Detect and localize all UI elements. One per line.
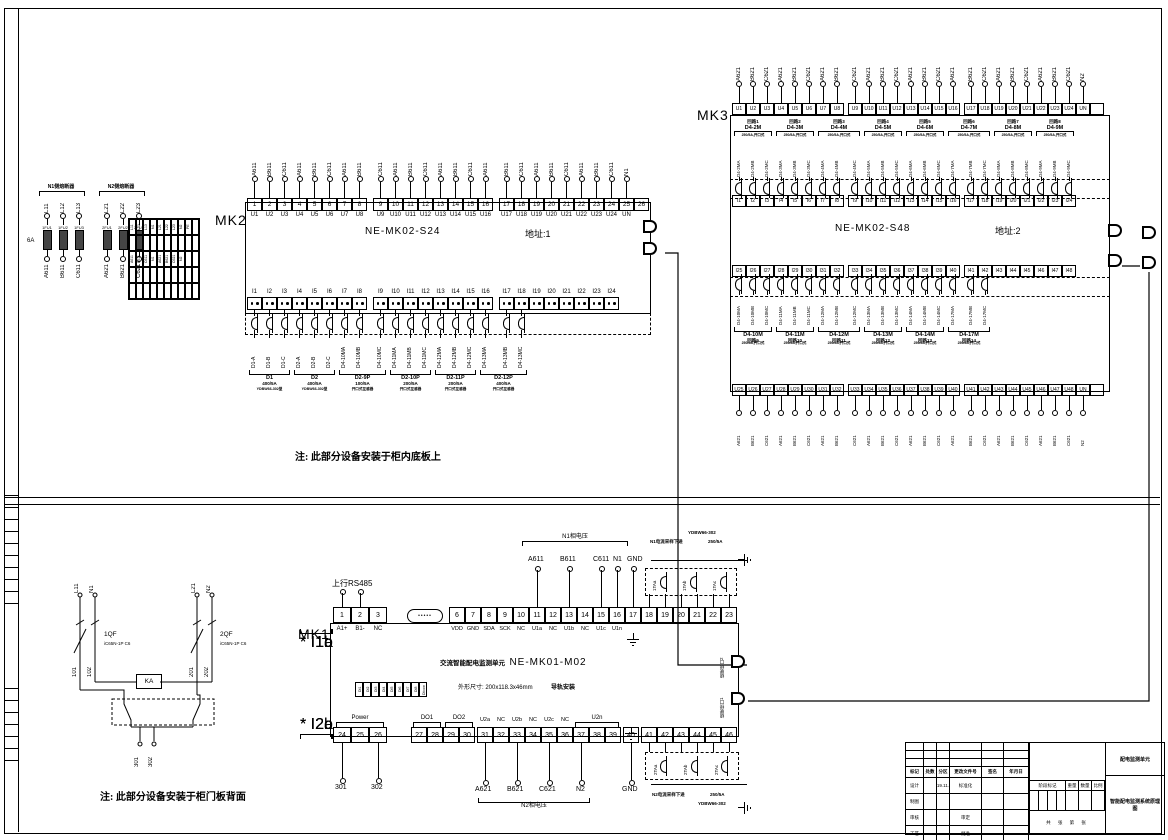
current-transformer-icon xyxy=(436,316,446,330)
terminal-number: 6 xyxy=(322,198,337,211)
terminal-column: B611 2 U2 xyxy=(262,150,277,220)
ct-wire-label: D4-3MC xyxy=(807,147,812,177)
terminal-strip-cell xyxy=(164,235,171,251)
terminal-column: C621 U6 xyxy=(802,55,816,115)
terminal-number: 41 xyxy=(641,727,657,743)
current-transformer-icon xyxy=(376,316,386,330)
signature-cell: 设计 xyxy=(906,778,924,794)
revision-cell xyxy=(950,751,982,759)
di-terminal: DI3 xyxy=(371,682,379,697)
title-header-row: 标记处数分区更改文件号签名年月日 xyxy=(906,767,1029,778)
fuse-icon xyxy=(59,230,68,250)
channel-terminal: I43 xyxy=(992,265,1006,277)
header-cell: 处数 xyxy=(924,767,937,778)
terminal-strip-cell: C621 xyxy=(171,251,178,267)
fuse-column: L11 1FU1 A611 xyxy=(39,197,55,278)
ct-wire-label: D4-10MC xyxy=(765,295,770,325)
terminal-column: B611 20 U20 xyxy=(544,150,559,220)
weight-label: 重量 xyxy=(1066,781,1079,791)
terminal-number: 40 xyxy=(623,727,639,743)
terminal-name: U15 xyxy=(932,103,946,115)
ct-wire-label: D4-10MA xyxy=(342,338,347,368)
wire-label: B621 xyxy=(835,416,840,446)
terminal-number: 19 xyxy=(657,607,673,623)
channel-name: I2 xyxy=(267,288,272,297)
terminal-pair xyxy=(262,297,277,310)
ct-group: 回路1 D4-2M 250/5A,开口式 xyxy=(734,119,772,138)
channel-terminal: I35 xyxy=(876,265,890,277)
terminal-strip-cell xyxy=(192,251,199,267)
ct-group: D2-12P 400/5A 开口式互感器 xyxy=(480,370,527,392)
fuse-column: L21 2FU1 A621 xyxy=(99,197,115,278)
revision-cell xyxy=(950,759,982,767)
mk3-unit: MK3 A621 U1 B621 U2 C621 U3 A621 xyxy=(695,55,1165,465)
terminal-strip-cell xyxy=(192,267,199,283)
current-channel-column: I11 D4-11MB xyxy=(403,288,418,368)
current-channel-column: I14 D4-12MB xyxy=(448,288,463,368)
wire-n1: N1 xyxy=(613,556,622,563)
wire-label: B621 xyxy=(969,416,974,446)
wire-label: A611 xyxy=(252,150,258,176)
terminal-pair xyxy=(478,297,493,310)
terminal-column: B611 23 U23 xyxy=(589,150,604,220)
wire-201: 201 xyxy=(189,659,195,677)
current-channel-column: I21 xyxy=(559,288,574,368)
wire-label: B621 xyxy=(793,416,798,446)
wire-label: C611 xyxy=(468,150,474,176)
terminal-number: 24 xyxy=(604,198,619,211)
channel-name: I24 xyxy=(607,288,615,297)
ct-group: 回路8 D4-9M 250/5A,开口式 xyxy=(1036,119,1074,138)
fuse-input-label: L12 xyxy=(60,197,66,213)
signature-cell xyxy=(924,778,937,794)
group-type: 开口式互感器 xyxy=(341,386,383,391)
group-type: 开口式互感器 xyxy=(437,386,474,391)
ct-wire-label: D4-4MB xyxy=(835,147,840,177)
wire-label: B611 xyxy=(408,150,414,176)
mk1-cascade-port-2 xyxy=(731,655,745,668)
mk2-bottom-terminals: I1 D1-A I2 D1-B I3 D1-C xyxy=(247,288,619,368)
terminal-number: 18 xyxy=(641,607,657,623)
terminal-column: C621 U3 xyxy=(760,55,774,115)
terminal-strip-cell xyxy=(192,235,199,251)
wire-label: C621 xyxy=(807,416,812,446)
terminal-column xyxy=(1090,384,1104,446)
breaker-1qf-label: 1QF xyxy=(104,631,117,638)
ct-wire-label: D4-7MC xyxy=(983,147,988,177)
terminal-strip-cell xyxy=(192,219,199,235)
wire-label: A611 xyxy=(342,150,348,176)
signature-cell: 制图 xyxy=(906,794,924,810)
ground-icon xyxy=(744,802,752,814)
terminal-column: U32 B621 xyxy=(830,384,844,446)
wire-label: C611 xyxy=(423,150,429,176)
terminal-column: U36 C621 xyxy=(890,384,904,446)
signature-cell xyxy=(1004,810,1029,826)
mk2-cascade-port-2 xyxy=(643,242,657,255)
ct-wire-label: D4-2MB xyxy=(751,147,756,177)
channel-name: I1 xyxy=(252,288,257,297)
group-type: YDBW66-302型 xyxy=(251,386,288,391)
terminal-name: U44 xyxy=(1006,384,1020,396)
signature-cell: 审定 xyxy=(950,810,982,826)
current-channel-column: I6 D2-C xyxy=(322,288,337,368)
current-channel-column: I16 D4-13MA xyxy=(478,288,493,368)
ct1-rating: 250/5A xyxy=(708,539,723,544)
wire-label: B621 xyxy=(792,55,798,81)
terminal-name: U15 xyxy=(465,211,476,220)
channel-name: I14 xyxy=(451,288,459,297)
terminal-strip-cell xyxy=(150,267,157,283)
revision-cell xyxy=(937,759,950,767)
terminal-strip-cell: B611 xyxy=(136,251,143,267)
channel-name: I19 xyxy=(532,288,540,297)
ct-wire-label: D4-12MC xyxy=(468,338,473,368)
wire-l21: L21 xyxy=(191,575,197,593)
stage-header: 阶段标记 重量 数量 比例 xyxy=(1030,781,1105,791)
current-channel-column: I1 D1-A xyxy=(247,288,262,368)
terminal-number: 13 xyxy=(561,607,577,623)
terminal-column: U30 C621 xyxy=(802,384,816,446)
terminal-number: 19 xyxy=(529,198,544,211)
terminal-column: U41 B621 xyxy=(964,384,978,446)
terminal-column: U48 C621 xyxy=(1062,384,1076,446)
ct-label: 2TAb xyxy=(684,757,689,775)
terminal-name: UN xyxy=(1076,103,1090,115)
current-transformer-icon xyxy=(720,759,730,773)
mk3-lower-groups: D4-10M 回路9 250/5A,开口式 D4-11M 回路10 250/5A… xyxy=(732,327,1112,357)
terminal-column: A611 10 U10 xyxy=(388,150,403,220)
title-block: 标记处数分区更改文件号签名年月日 设计2019.11.04标准化制图审核审定工艺… xyxy=(905,742,1165,835)
wire-302: 302 xyxy=(371,784,383,791)
terminal-column: C611 15 U15 xyxy=(463,150,478,220)
terminal-column: A611 22 U22 xyxy=(574,150,589,220)
terminal-number: 9 xyxy=(497,607,513,623)
terminal-name: U10 xyxy=(862,103,876,115)
mk1-dims-text: 外形尺寸: 200x118.3x46mm xyxy=(458,685,533,691)
wire-label: A611 xyxy=(438,150,444,176)
group-type: 开口式互感器 xyxy=(482,386,524,391)
terminal-pair xyxy=(307,297,322,310)
terminal-column: C621 U12 xyxy=(890,55,904,115)
terminal-column: B611 5 U5 xyxy=(307,150,322,220)
terminal-number: 14 xyxy=(448,198,463,211)
ct-group: 回路6 D4-7M 250/5A,开口式 xyxy=(948,119,990,138)
terminal-name: U48 xyxy=(1062,384,1076,396)
terminal-number: 13 xyxy=(433,198,448,211)
drawing-title-top: 配电监测单元 xyxy=(1106,743,1164,776)
ct-wire-label: D4-3MA xyxy=(779,147,784,177)
signature-cell: 工艺 xyxy=(906,826,924,840)
wire-label: A621 xyxy=(909,416,914,446)
channel-terminal: I32 xyxy=(830,265,844,277)
current-transformer-icon xyxy=(421,316,431,330)
wire-label: A611 xyxy=(534,150,540,176)
terminal-name: U5 xyxy=(788,103,802,115)
terminal-strip-cell: L11 xyxy=(129,219,136,235)
current-transformer-icon xyxy=(340,316,350,330)
terminal-name: U1 xyxy=(251,211,259,220)
channel-name: I4 xyxy=(297,288,302,297)
header-cell: 分区 xyxy=(937,767,950,778)
terminal-name: U17 xyxy=(501,211,512,220)
wire-label: A621 xyxy=(737,416,742,446)
wire-label: B621 xyxy=(968,55,974,81)
wire-102: 102 xyxy=(87,659,93,677)
terminal-pair xyxy=(448,297,463,310)
rs485-label: 上行RS485 xyxy=(332,578,372,589)
section-divider-1 xyxy=(4,497,1160,498)
terminal-name: U16 xyxy=(946,103,960,115)
channel-terminal: I40 xyxy=(946,265,960,277)
current-transformer-icon xyxy=(689,575,699,589)
channel-name: I10 xyxy=(391,288,399,297)
group-rating: 250/5A,开口式 xyxy=(776,341,814,346)
terminal-name: U6 xyxy=(802,103,816,115)
ct-item: 1TAa xyxy=(653,573,669,591)
terminal-strip-cell: L23 xyxy=(171,219,178,235)
terminal-pair xyxy=(604,297,619,310)
revision-cell xyxy=(906,751,924,759)
mk2-ct-groups: D1 400/5A YDBW66-302型 D2 400/5A YDBW66-3… xyxy=(247,370,647,406)
current-channel-column: I9 D4-10MC xyxy=(373,288,388,368)
terminal-column: B621 U17 xyxy=(964,55,978,115)
ct-wire-label: D4-10MC xyxy=(378,338,383,368)
terminal-number: 43 xyxy=(673,727,689,743)
ct-label: 2TAc xyxy=(715,757,720,775)
fuse-output-label: A621 xyxy=(104,262,110,278)
terminal-column: A621 U1 xyxy=(732,55,746,115)
wire-label: C621 xyxy=(853,416,858,446)
ct-wire-label: D4-7MA xyxy=(951,147,956,177)
terminal-column: U39 C621 xyxy=(932,384,946,446)
terminal-strip-cell xyxy=(136,235,143,251)
terminal-number: 15 xyxy=(593,607,609,623)
wire-label: C611 xyxy=(282,150,288,176)
wire-301: 301 xyxy=(335,784,347,791)
group-rating: 400/5A xyxy=(480,381,527,386)
group-rating: 250/5A,开口式 xyxy=(734,341,772,346)
wire-label: C621 xyxy=(982,55,988,81)
wire-label: B621 xyxy=(922,55,928,81)
terminal-number: 46 xyxy=(721,727,737,743)
ct-wire-label: D4-4MA xyxy=(821,147,826,177)
wire-label: A621 xyxy=(779,416,784,446)
terminal-strip-cell xyxy=(178,235,185,251)
ct-label: 1TAb xyxy=(683,573,688,591)
channel-name: I16 xyxy=(481,288,489,297)
terminal-name: U25 xyxy=(732,384,746,396)
wire-202: 202 xyxy=(204,659,210,677)
wire-label: C621 xyxy=(765,416,770,446)
terminal-name: U20 xyxy=(1006,103,1020,115)
terminal-number: 1 xyxy=(247,198,262,211)
terminal-number: 8 xyxy=(481,607,497,623)
revision-cell xyxy=(924,759,937,767)
channel-name: I8 xyxy=(357,288,362,297)
ct-wire-label: D4-17MC xyxy=(983,295,988,325)
current-transformer-icon xyxy=(719,575,729,589)
fuse-group-n2-title: N2侧熔断器 xyxy=(97,183,145,190)
group-rating: 250/5A,开口式 xyxy=(864,341,902,346)
terminal-name: U20 xyxy=(546,211,557,220)
wire-label: C621 xyxy=(1066,55,1072,81)
channel-terminal: I27 xyxy=(760,265,774,277)
signature-cell xyxy=(982,794,1004,810)
terminal-strip-cell: L21 xyxy=(157,219,164,235)
terminal-name: U12 xyxy=(420,211,431,220)
terminal-column: C621 U24 xyxy=(1062,55,1076,115)
title-block-mid: 阶段标记 重量 数量 比例 共 张 第 张 xyxy=(1029,743,1105,834)
terminal-name: U36 xyxy=(890,384,904,396)
terminal-column: U47 B621 xyxy=(1048,384,1062,446)
terminal-column: C621 U15 xyxy=(932,55,946,115)
signature-cell: 审核 xyxy=(906,810,924,826)
revision-cell xyxy=(906,759,924,767)
wire-label: A611 xyxy=(393,150,399,176)
terminal-name: U31 xyxy=(816,384,830,396)
terminal-name: U7 xyxy=(341,211,349,220)
terminal-strip-cell xyxy=(157,267,164,283)
door-circuit-wires xyxy=(60,575,275,795)
ct-wire-label: D1-C xyxy=(282,338,287,368)
terminal-name: U6 xyxy=(326,211,334,220)
terminal-name: U46 xyxy=(1034,384,1048,396)
ct-wire-label: D1-B xyxy=(267,338,272,368)
mk3-top-terminals: A621 U1 B621 U2 C621 U3 A621 U4 B621 xyxy=(732,55,1104,115)
wire-l11: L11 xyxy=(74,575,80,593)
wire-label: A621 xyxy=(997,416,1002,446)
ct-wire-label: D4-12MA xyxy=(821,295,826,325)
ct-group: 回路4 D4-5M 250/5A,开口式 xyxy=(864,119,902,138)
ct-wire-label: D4-11MA xyxy=(393,338,398,368)
header-cell: 签名 xyxy=(982,767,1004,778)
wire-label: C611 xyxy=(378,150,384,176)
signature-cell xyxy=(982,826,1004,840)
group-type: 开口式互感器 xyxy=(392,386,429,391)
terminal-number: 42 xyxy=(657,727,673,743)
terminal-pair xyxy=(589,297,604,310)
wire-label: A621 xyxy=(867,416,872,446)
fuse-output-label: A611 xyxy=(44,262,50,278)
di-terminal: DI6 xyxy=(395,682,403,697)
ct-wire-label: D4-3MB xyxy=(793,147,798,177)
fuse-output-label: B611 xyxy=(60,262,66,278)
terminal-name: U8 xyxy=(830,103,844,115)
wire-label: A611 xyxy=(483,150,489,176)
terminal-column: A621 U10 xyxy=(862,55,876,115)
ct-wire-label: D4-17MB xyxy=(969,295,974,325)
signature-cell xyxy=(937,826,950,840)
note-cabinet: 注: 此部分设备安装于柜内底板上 xyxy=(295,448,441,463)
terminal-number: 10 xyxy=(388,198,403,211)
terminal-strip-cell: L13 xyxy=(143,219,150,235)
terminal-name: U37 xyxy=(904,384,918,396)
terminal-number: 3 xyxy=(369,607,387,623)
wire-label: A621 xyxy=(950,55,956,81)
signature-cell xyxy=(937,810,950,826)
di-terminal: DI5 xyxy=(387,682,395,697)
signature-cell xyxy=(982,810,1004,826)
ct-label: 1TAa xyxy=(653,573,658,591)
terminal-pair xyxy=(388,297,403,310)
channel-terminal: I38 xyxy=(918,265,932,277)
current-transformer-icon xyxy=(265,316,275,330)
signature-cell xyxy=(1004,794,1029,810)
wire-label: N1 xyxy=(624,150,630,176)
fuse-input-label: L23 xyxy=(136,197,142,213)
wire-label: B621 xyxy=(1011,416,1016,446)
terminal-name: U17 xyxy=(964,103,978,115)
terminal-column: C621 U18 xyxy=(978,55,992,115)
ct-group: D4-12M 回路11 250/5A,开口式 xyxy=(818,327,860,346)
wire-label: A611 xyxy=(579,150,585,176)
relay-ka: KA xyxy=(136,674,162,689)
terminal-name: U18 xyxy=(978,103,992,115)
channel-terminal: I25 xyxy=(732,265,746,277)
fuse-icon xyxy=(103,230,112,250)
terminal-number: 28 xyxy=(427,727,443,743)
mk2-cascade-port-1 xyxy=(643,220,657,233)
channel-terminal: I26 xyxy=(746,265,760,277)
terminal-strip-cell: N1 xyxy=(150,251,157,267)
current-transformer-icon xyxy=(659,759,669,773)
wire-label: A621 xyxy=(866,55,872,81)
di-terminal: DI7 xyxy=(403,682,411,697)
wire-label: A621 xyxy=(1039,416,1044,446)
wire-b611: B611 xyxy=(560,556,576,563)
ct-wire-label: D4-13MC xyxy=(895,295,900,325)
terminal-column: A611 13 U13 xyxy=(433,150,448,220)
terminal-pair xyxy=(337,297,352,310)
signature-cell xyxy=(950,794,982,810)
terminal-pair xyxy=(559,297,574,310)
ct-wire-label: D4-8MB xyxy=(1011,147,1016,177)
terminal-number: 15 xyxy=(463,198,478,211)
wire-gnd2: GND xyxy=(622,786,638,793)
wire-label: N2 xyxy=(1080,55,1086,81)
terminal-name: U26 xyxy=(746,384,760,396)
current-input-bracket: I1c xyxy=(300,629,332,652)
group-rating: 100/5A xyxy=(339,381,386,386)
channel-terminal: I48 xyxy=(1062,265,1076,277)
channel-name: I3 xyxy=(282,288,287,297)
db9-connector-icon[interactable]: ••••• xyxy=(407,609,443,623)
current-channel-column: I3 D1-C xyxy=(277,288,292,368)
ct-wire-label: D2-B xyxy=(312,338,317,368)
terminal-number: 39 xyxy=(605,727,621,743)
title-block-left: 标记处数分区更改文件号签名年月日 设计2019.11.04标准化制图审核审定工艺… xyxy=(906,743,1029,834)
schematic-page: N1侧熔断器 N2侧熔断器 6A L11 1FU1 A611 L12 1FU2 xyxy=(0,0,1168,840)
terminal-number: 22 xyxy=(705,607,721,623)
terminal-number: 11 xyxy=(529,607,545,623)
ct-group: D2 400/5A YDBW66-302型 xyxy=(294,370,335,392)
ct-wire-label: D4-13MA xyxy=(867,295,872,325)
terminal-number: 10 xyxy=(513,607,529,623)
terminal-column: U33 C621 xyxy=(848,384,862,446)
drawing-frame-inner xyxy=(18,8,19,832)
wire-label: B621 xyxy=(881,416,886,446)
ct-wire-label: D4-11MA xyxy=(779,295,784,325)
terminal-strip-cell xyxy=(185,235,192,251)
ct-wire-label: D4-4MC xyxy=(853,147,858,177)
channel-terminal: I44 xyxy=(1006,265,1020,277)
ct-wire-label: D4-10MB xyxy=(751,295,756,325)
terminal-number: 4 xyxy=(292,198,307,211)
stage-label: 阶段标记 xyxy=(1030,781,1066,791)
terminal-name: U12 xyxy=(890,103,904,115)
terminal-number: 7 xyxy=(337,198,352,211)
